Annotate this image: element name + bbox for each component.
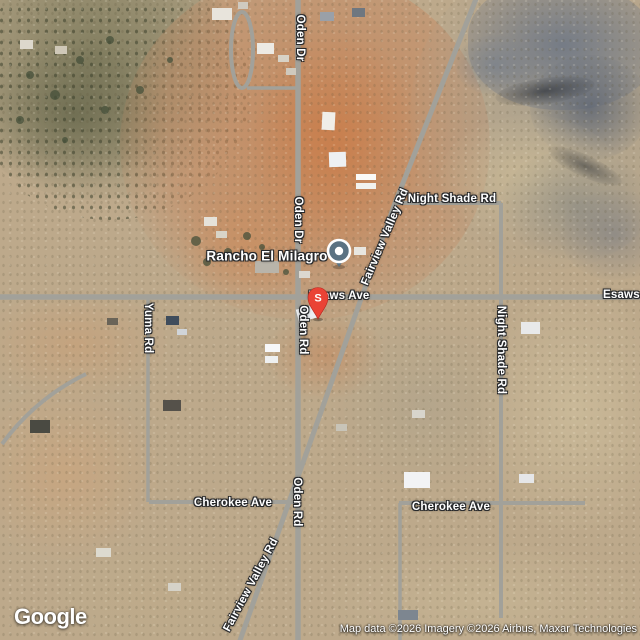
terrain-rock-crevice-1 [494,71,597,111]
building [238,2,248,9]
terrain-rock-crevice-2 [544,139,626,193]
building [329,152,347,168]
building [299,271,310,278]
road-label-cherokee-ave-right: Cherokee Ave [412,501,490,513]
building [286,68,296,75]
s-pin-icon: S [306,287,330,323]
building [352,8,365,17]
terrain-rock-sand [440,115,620,240]
building [265,344,280,352]
building [20,40,33,49]
building [216,231,227,238]
terrain-rock-hill-5 [560,190,640,280]
s-marker-pin[interactable]: S [306,287,330,328]
terrain-rock-hill-4 [500,150,640,260]
building [204,217,217,226]
building [412,410,425,418]
terrain-rock-base [410,0,640,270]
building [336,424,347,431]
place-pin-icon [324,238,354,278]
road-label-oden-rd-lower: Oden Rd [291,477,303,526]
building [521,322,540,334]
building [212,8,232,20]
s-pin-letter: S [314,293,321,305]
terrain-rock-hill-1 [468,0,640,110]
road-label-cherokee-ave-left: Cherokee Ave [194,497,272,509]
building [356,183,376,189]
road-night-shade [397,203,501,618]
building [168,583,181,591]
building [166,316,179,325]
road-label-yuma-rd: Yuma Rd [142,303,154,354]
road-curve-southwest [2,374,86,444]
building [107,318,118,325]
google-logo[interactable]: Google [14,604,87,630]
buildings-layer [20,2,540,620]
attribution-text: Map data ©2026 Imagery ©2026 Airbus, Max… [340,623,637,635]
building [322,112,336,131]
building [257,43,274,54]
road-label-esaws-ave-right: Esaws [603,289,640,301]
road-loop-driveway [231,12,253,88]
terrain-orange-core [250,30,420,270]
building [163,400,181,411]
vegetation-layer [16,36,289,275]
building [519,474,534,483]
building [278,55,289,62]
terrain-pink-bottomleft [0,385,160,560]
road-label-oden-dr-top: Oden Dr [294,15,306,62]
building [354,247,366,255]
terrain-scrub-topleft [0,0,240,200]
terrain-scrub-vegetation [0,0,250,220]
satellite-map-viewport[interactable]: Oden Dr Oden Dr Oden Rd Oden Rd Yuma Rd … [0,0,640,640]
terrain-gray-middle [330,320,520,490]
building [30,420,50,433]
road-label-fairview-valley-upper: Fairview Valley Rd [359,187,411,287]
road-label-night-shade-horizontal: Night Shade Rd [408,193,496,205]
building [398,610,418,620]
building [177,329,187,335]
terrain-rock-hill-2 [530,55,640,160]
building [320,12,334,21]
road-label-night-shade-vertical: Night Shade Rd [495,306,507,394]
terrain-scrub-dark [0,40,170,190]
road-label-fairview-valley-lower: Fairview Valley Rd [221,536,280,633]
building [96,548,111,557]
building [404,472,430,488]
terrain-rock-hill-3 [455,35,535,95]
building [356,174,376,180]
building [265,356,278,363]
road-label-oden-dr-mid: Oden Dr [292,197,304,244]
place-pin-rancho[interactable] [324,238,354,283]
building [55,46,67,54]
place-label-rancho-el-milagro: Rancho El Milagro [206,249,327,264]
